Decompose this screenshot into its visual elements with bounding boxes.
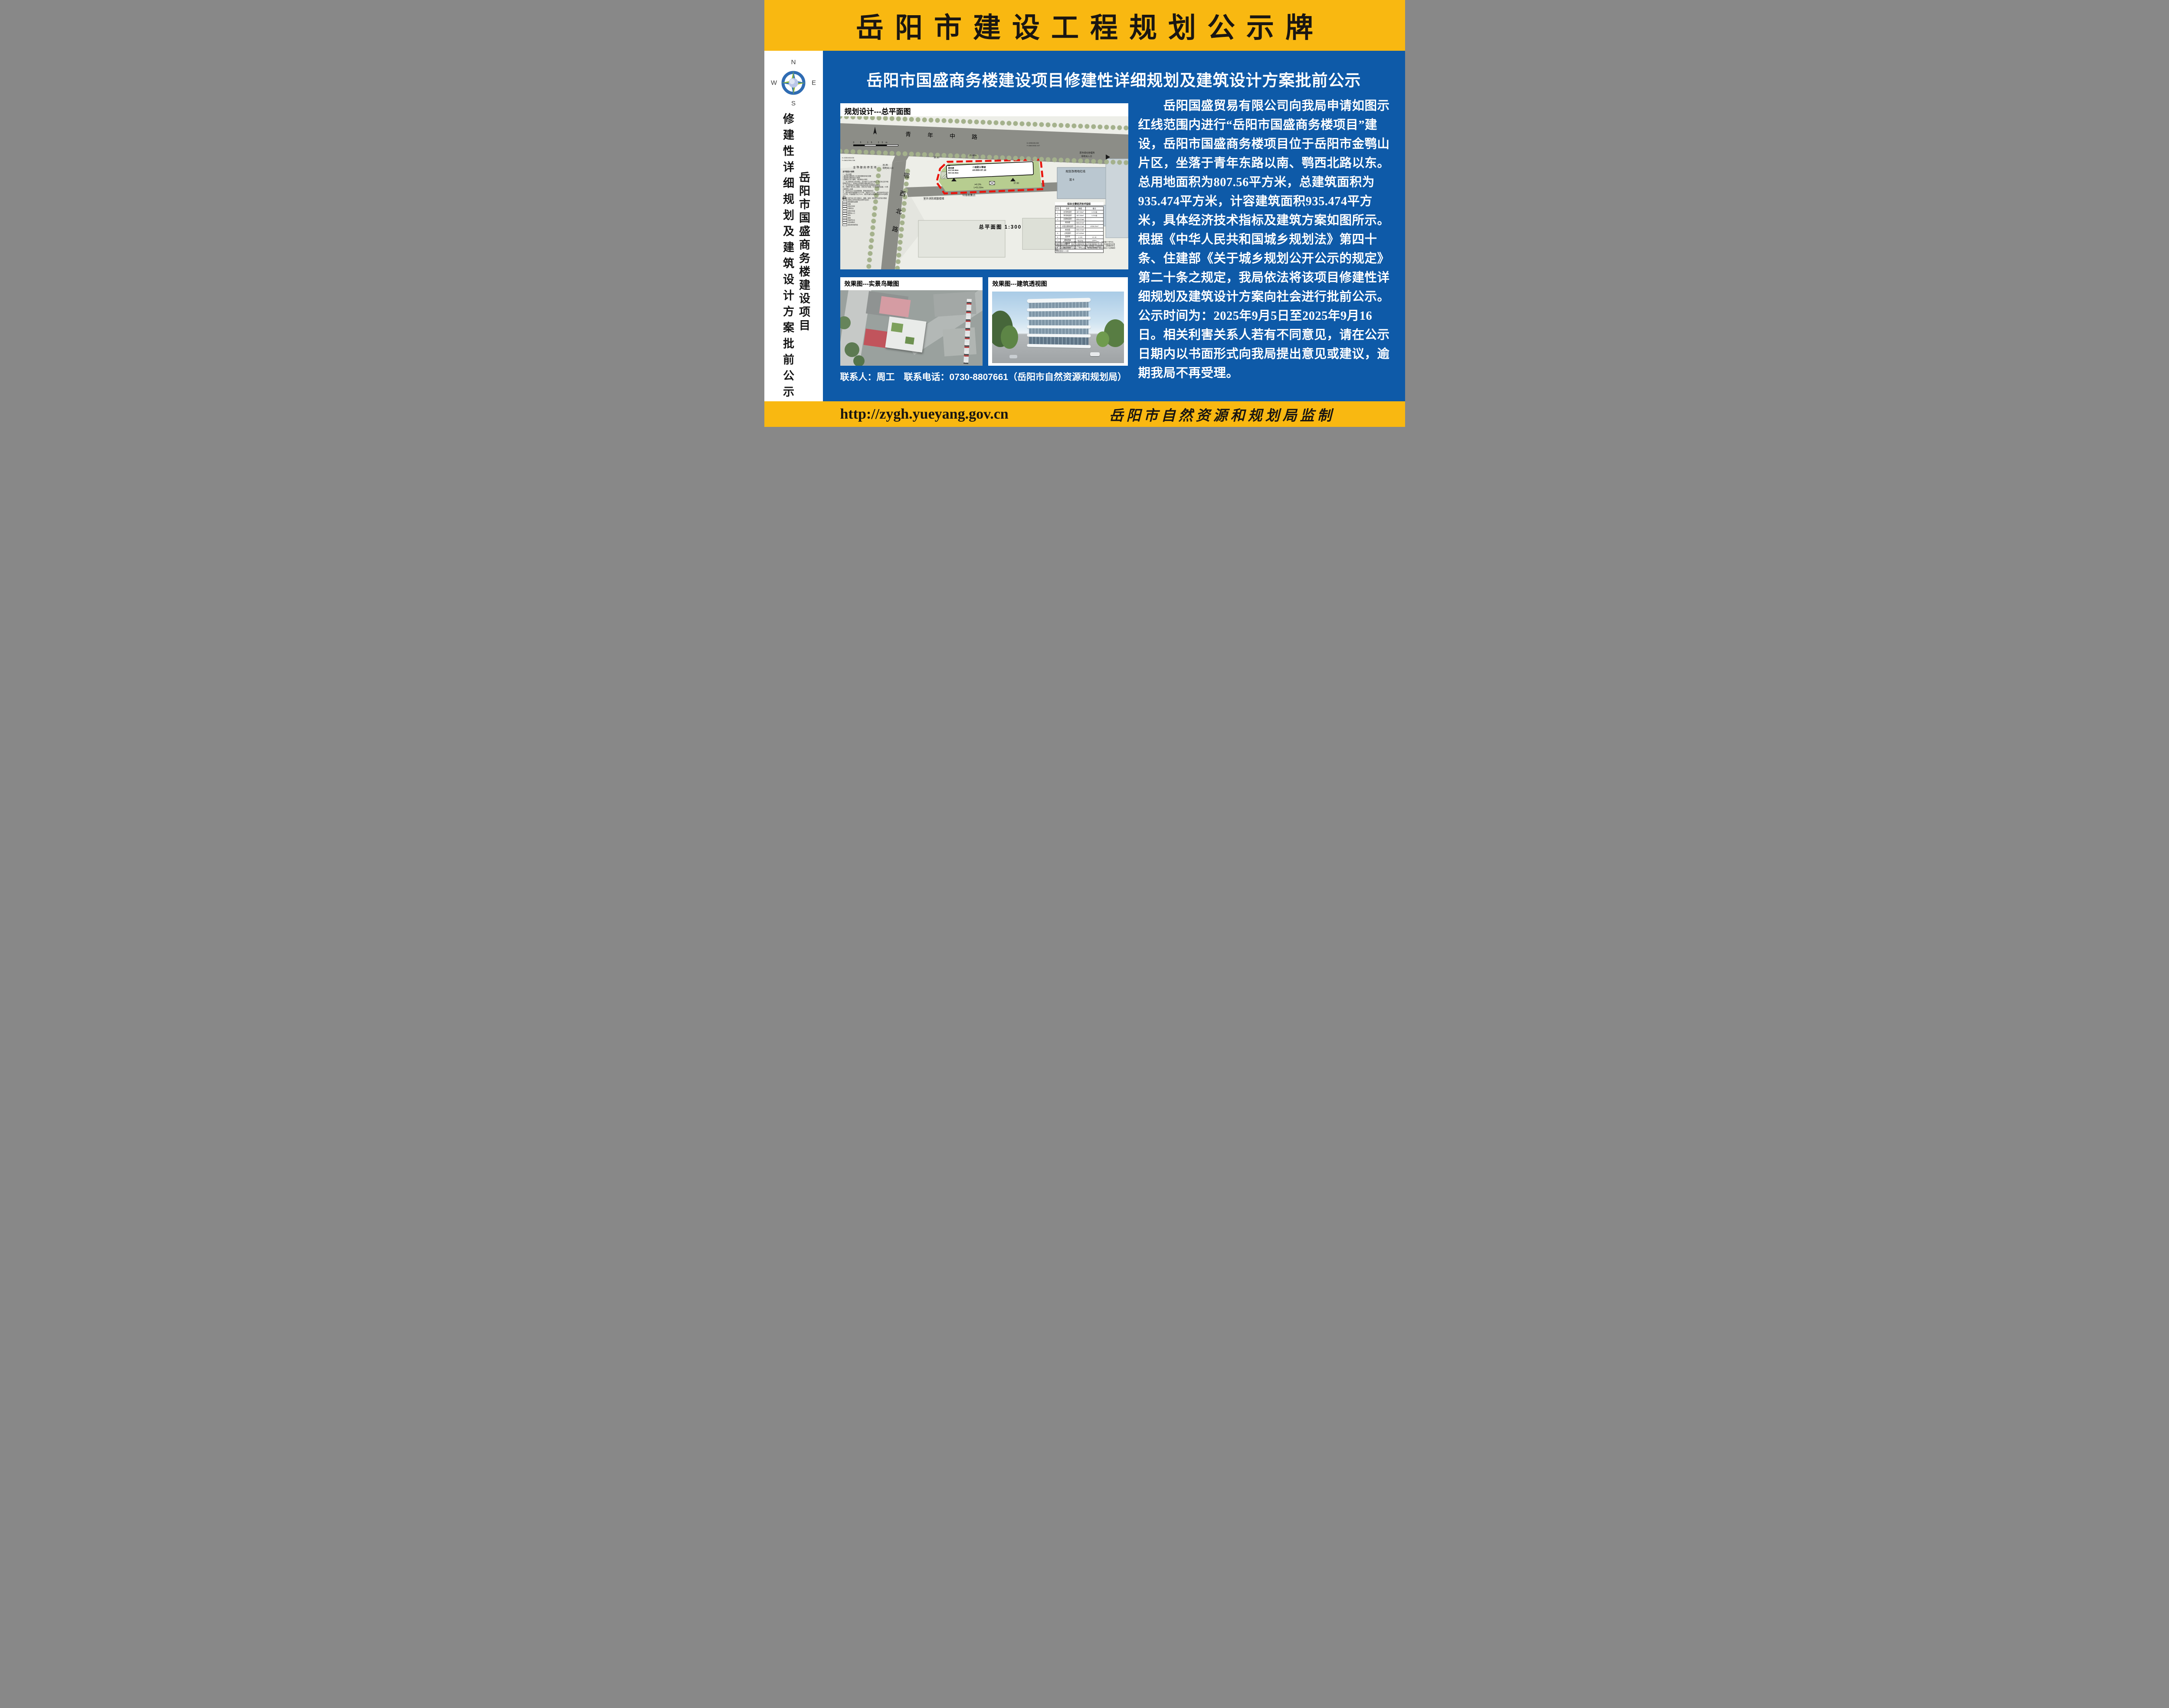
site-plan-label: 规划设计---总平面图 <box>845 105 911 116</box>
building-rendering <box>992 292 1124 363</box>
dimension-label-2540: 25.40m <box>970 154 977 157</box>
economic-table-row-cell: 2 <box>1055 214 1060 217</box>
economic-table-row-cell <box>1085 217 1103 221</box>
entrance-label: 场地出入口 <box>1081 155 1092 158</box>
economic-table-row-cell: 935.474m² <box>1075 217 1085 221</box>
economic-table-row-cell: 6 <box>1055 235 1060 239</box>
aerial-view-label: 效果图---实景鸟瞰图 <box>845 279 899 288</box>
economic-table-header-cell: 备注 <box>1085 207 1103 210</box>
economic-table-row-cell: 总用地面积 <box>1060 210 1075 214</box>
sidebar-vertical-subtitle: 修建性详细规划及建筑设计方案批前公示 <box>780 113 796 402</box>
paragraph-line: 根据《中华人民共和国城乡规划法》第四十 <box>1138 230 1399 249</box>
economic-table-row-cell: 商务楼 <box>1060 228 1075 232</box>
producer-label: 岳阳市自然资源和规划局监制 <box>1109 404 1335 425</box>
economic-table-row-cell <box>1055 228 1060 232</box>
aerial-tree <box>853 355 865 366</box>
paragraph-line: 米，具体经济技术指标及建筑方案如图所示。 <box>1138 211 1399 230</box>
paragraph-line: 总用地面积为807.56平方米，总建筑面积为 <box>1138 173 1399 192</box>
parking-note: 停车说明：本项目停车泊位根据《国有建设用地使用权出让合同》，应配建5个停车位，因… <box>1055 241 1116 251</box>
plan-legend: 图例 规划建筑及层数道路控制点坐标间距标注控制点标高建筑出入口绿化铺地地面停车位… <box>842 197 882 226</box>
economic-table-row-cell: 807.56m² <box>1075 214 1085 217</box>
paragraph-line: 日期内以书面形式向我局提出意见或建议，逾 <box>1138 345 1399 364</box>
economic-table-row-cell: 227.825m² <box>1075 232 1085 235</box>
economic-table-row-cell: 1.211亩 <box>1085 214 1103 217</box>
plan-caption: 总平面图 1:300 <box>979 225 1022 231</box>
notice-paragraph: 岳阳国盛贸易有限公司向我局申请如图示红线范围内进行“岳阳市国盛商务楼项目”建设，… <box>1138 97 1399 383</box>
economic-table-row-cell: 3 <box>1055 217 1060 221</box>
economic-table-row-cell: 占地面积 <box>1060 232 1075 235</box>
car <box>1090 352 1100 356</box>
note-line: 四、本图中F表示地上层数，D表示地下层数，H1表示建筑高度，H2表示建筑防火高度 <box>843 186 889 190</box>
paragraph-line: 细规划及建筑设计方案向社会进行批前公示。 <box>1138 288 1399 307</box>
plan-notes-title: 总平面设计说明 <box>843 171 889 173</box>
coordinate-label-y1: Y=38412994.336 <box>842 160 855 162</box>
legend-title: 图例 <box>842 197 882 200</box>
footer-band: http://zygh.yueyang.gov.cn 岳阳市自然资源和规划局监制 <box>764 401 1405 427</box>
notice-title: 岳阳市国盛商务楼建设项目修建性详细规划及建筑设计方案批前公示 <box>823 67 1405 91</box>
economic-table-row: 商务楼935.474m² <box>1055 221 1103 224</box>
paragraph-line: 期我局不再受理。 <box>1138 364 1399 383</box>
legend-item: 规划净用地界线 <box>842 224 882 226</box>
compass-south-label: S <box>791 100 796 107</box>
economic-table-title: 综合主要经济技术指标 <box>1055 202 1104 206</box>
paragraph-line: 岳阳国盛贸易有限公司向我局申请如图示 <box>1138 97 1399 116</box>
building-base <box>1027 344 1091 348</box>
legend-items: 规划建筑及层数道路控制点坐标间距标注控制点标高建筑出入口绿化铺地地面停车位垃圾收… <box>842 201 882 226</box>
website-url: http://zygh.yueyang.gov.cn <box>840 406 1009 423</box>
site-plan-drawing: 青年中路 鄂西北路 4F商务楼H1=16.55mH2=15.05m 二级耐火等级… <box>840 116 1128 269</box>
economic-table-row-cell: ≤1.16 <box>1085 235 1103 239</box>
paragraph-line: 第二十条之规定，我局依法将该项目修建性详 <box>1138 269 1399 288</box>
sidebar-vertical-project: 岳阳市国盛商务楼建设项目 <box>796 171 812 333</box>
economic-table-header-cell: 数值 <box>1075 207 1085 210</box>
economic-table-header-cell: 名称 <box>1060 207 1075 210</box>
contact-line: 联系人：周工 联系电话：0730-8807661（岳阳市自然资源和规划局） <box>840 370 1127 383</box>
building-glass-floor <box>1029 311 1088 317</box>
building-glass-floor <box>1029 328 1088 334</box>
scale-bar-text: 0 5 15 25m <box>853 141 901 144</box>
economic-table-row-cell <box>1085 221 1103 224</box>
header-band: 岳阳市建设工程规划公示牌 <box>764 0 1405 51</box>
sidebar: N S W E 修建性详细规划及建筑设计方案批前公示 岳阳市国盛商务楼建设项目 <box>764 51 823 401</box>
paragraph-line: 日。相关利害关系人若有不同意见，请在公示 <box>1138 326 1399 345</box>
paragraph-line: 公示时间为：2025年9月5日至2025年9月16 <box>1138 307 1399 326</box>
aerial-roof-garden <box>904 337 914 345</box>
economic-table-row-cell: ≤936.20m² <box>1085 224 1103 228</box>
economic-table-row: 5占地面积227.825m² <box>1055 232 1103 235</box>
scale-bar: 0 5 15 25m <box>853 141 901 146</box>
paragraph-line: 片区，坐落于青年东路以南、鹗西北路以东。 <box>1138 154 1399 173</box>
spot-elevation-label: 37.00 <box>1014 182 1019 185</box>
board-title: 岳阳市建设工程规划公示牌 <box>845 6 1324 46</box>
economic-table-row-cell: 总建筑面积 <box>1060 217 1075 221</box>
economic-table-row: 3总建筑面积935.474m² <box>1055 217 1103 221</box>
aerial-tree <box>845 342 859 357</box>
economic-table-row-cell: 4 <box>1055 224 1060 228</box>
building-spec-block: 4F商务楼H1=16.55mH2=15.05m <box>948 164 959 174</box>
economic-table-row: 商务楼935.474m² <box>1055 228 1103 232</box>
redline-label: 规划净用地红线 <box>1066 170 1086 174</box>
dimension-label-3690: 36.90 <box>934 157 940 159</box>
parking-lot-label: 金鹗御府停车场 <box>853 167 878 170</box>
scale-bar-graphic <box>853 144 898 146</box>
compass-east-label: E <box>812 79 816 87</box>
economic-table-row: 2净用地面积807.56m²1.211亩 <box>1055 214 1103 217</box>
economic-table-row-cell: 容积率 <box>1060 235 1075 239</box>
economic-table-row-cell: 935.474m² <box>1075 221 1085 224</box>
compass-north-label: N <box>791 59 796 66</box>
notice-board: 岳阳市建设工程规划公示牌 N S W E 修建性详细规划及建筑设计方案批前公示 … <box>764 0 1405 427</box>
entrance-elev-label: 36.85 <box>883 164 888 167</box>
paragraph-line: 红线范围内进行“岳阳市国盛商务楼项目”建 <box>1138 116 1399 135</box>
building-glass-floor <box>1029 320 1088 325</box>
aerial-project-building <box>885 316 926 352</box>
note-line: 二、本工程标高以米为单位，总平面尺寸以米为单位，尺寸标注在外墙轮廓的交点上，坐标… <box>843 181 889 185</box>
economic-table-row-cell: 935.474m² <box>1075 228 1085 232</box>
fire-rating-label: 二级耐火等级 <box>973 166 986 169</box>
elevation-label: ±0.000=37.10 <box>973 169 986 172</box>
tree <box>1001 325 1018 349</box>
car <box>1009 355 1017 358</box>
fire-stairs-label: 室外消防疏散楼梯 <box>924 198 944 201</box>
economic-table-row-cell: 净用地面积 <box>1060 214 1075 217</box>
compass-icon: N S W E <box>771 59 816 107</box>
compass-rose-graphic <box>780 69 807 96</box>
compass-west-label: W <box>771 79 777 87</box>
aerial-building-block <box>942 327 976 356</box>
economic-table-row-cell <box>1085 232 1103 235</box>
slope-label: i=0.3% <box>975 184 981 186</box>
economic-table-header-row: 序号名称数值备注 <box>1055 207 1103 210</box>
perspective-panel: 效果图---建筑透视图 <box>988 277 1128 366</box>
economic-table-row-cell: 807.56m² <box>1075 210 1085 214</box>
economic-table-row-cell: 1.159 <box>1075 235 1085 239</box>
building-spec-line: H2=15.05m <box>948 172 959 174</box>
economic-table-row-cell <box>1085 228 1103 232</box>
economic-table-header-cell: 序号 <box>1055 207 1060 210</box>
aerial-roof-garden <box>891 322 903 332</box>
main-area: 岳阳市国盛商务楼建设项目修建性详细规划及建筑设计方案批前公示 规划设计---总平… <box>823 51 1405 401</box>
economic-table-row-cell: 商务楼 <box>1060 221 1075 224</box>
paragraph-line: 设，岳阳市国盛商务楼项目位于岳阳市金鹗山 <box>1138 135 1399 154</box>
economic-table-row-cell: 5 <box>1055 232 1060 235</box>
economic-table-row-cell <box>1055 221 1060 224</box>
mix6-label: 混 6 <box>1069 178 1075 182</box>
site-entrance-label: 场地出入口 <box>883 167 894 170</box>
rendered-building <box>1027 298 1091 348</box>
aerial-photo <box>840 290 983 366</box>
economic-table-row-cell: 计容总建筑面积 <box>1060 224 1075 228</box>
trash-point-label: 垃圾收集点 <box>963 194 976 197</box>
perspective-label: 效果图---建筑透视图 <box>993 279 1047 288</box>
tree <box>1096 331 1109 347</box>
coordinate-label-y2: Y=38413032.107 <box>1027 145 1040 147</box>
economic-table-row-cell: 1 <box>1055 210 1060 214</box>
economic-table-row: 6容积率1.159≤1.16 <box>1055 235 1103 239</box>
paragraph-line: 935.474平方米，计容建筑面积935.474平方 <box>1138 192 1399 211</box>
paragraph-line: 条、住建部《关于城乡规划公开公示的规定》 <box>1138 249 1399 269</box>
economic-table-row-cell: 935.474m² <box>1075 224 1085 228</box>
site-plan-panel: 规划设计---总平面图 <box>840 103 1128 269</box>
road-length-label: L=51.50m <box>974 187 983 189</box>
economic-table-row-cell: 1.211亩 <box>1085 210 1103 214</box>
economic-table-row: 1总用地面积807.56m²1.211亩 <box>1055 210 1103 214</box>
aerial-view-panel: 效果图---实景鸟瞰图 <box>840 277 983 366</box>
economic-table-row: 4计容总建筑面积935.474m²≤936.20m² <box>1055 224 1103 228</box>
building-fire-block: 二级耐火等级 ±0.000=37.10 <box>973 166 986 173</box>
entrance-owner-label: 原市绿化管理所 <box>1080 152 1095 154</box>
